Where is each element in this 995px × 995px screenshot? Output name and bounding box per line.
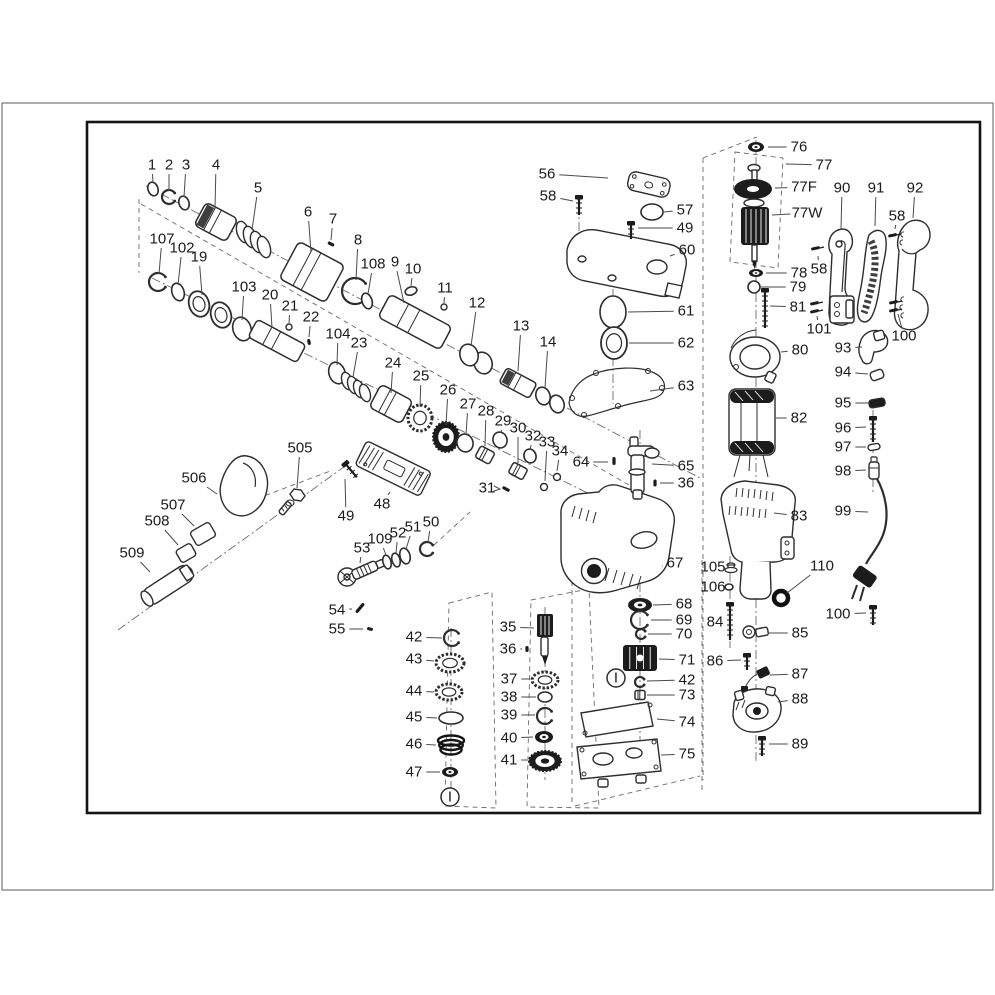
callout-label-36: 36 [500, 641, 517, 658]
part-glyph [600, 296, 626, 328]
callout-label-12: 12 [469, 295, 486, 312]
callout-label-7: 7 [329, 211, 337, 228]
callout-label-70: 70 [676, 626, 693, 643]
leader-line [207, 487, 217, 494]
callout-label-71: 71 [679, 652, 696, 669]
callout-label-91: 91 [868, 180, 885, 197]
cover-plate-drawing [626, 171, 671, 199]
callout-label-83: 83 [791, 508, 808, 525]
part-glyph [339, 371, 372, 403]
leader-line [545, 451, 547, 481]
part-glyph [444, 630, 460, 646]
callout-label-63: 63 [678, 378, 695, 395]
grip-91-drawing [857, 230, 886, 321]
leader-line [657, 719, 675, 721]
dashed-line [434, 512, 470, 545]
callout-label-55: 55 [329, 621, 346, 638]
leader-line [501, 430, 502, 433]
page-border [2, 103, 993, 890]
callout-label-100: 100 [891, 328, 916, 345]
field-stator-drawing [729, 389, 775, 477]
callout-label-93: 93 [835, 340, 852, 357]
power-cord-drawing [852, 477, 887, 601]
part-glyphs-layer [146, 142, 902, 777]
callout-label-64: 64 [573, 454, 590, 471]
leader-line [545, 351, 547, 388]
part-glyph [575, 195, 583, 215]
leader-line [855, 511, 868, 512]
callout-label-56: 56 [539, 166, 556, 183]
callout-label-4: 4 [212, 157, 220, 174]
leader-line [471, 312, 476, 346]
part-glyph [758, 736, 766, 756]
gear-housing-drawing [561, 485, 674, 593]
part-glyph [307, 339, 311, 345]
callout-label-105: 105 [700, 559, 725, 576]
leader-line [396, 542, 397, 553]
leader-line [727, 660, 741, 661]
part-glyph [811, 246, 824, 251]
callout-label-104: 104 [325, 326, 350, 343]
armature-drawing [734, 165, 772, 270]
bottom-plate-75-drawing [577, 739, 661, 787]
callout-label-I: I [614, 670, 618, 687]
leader-line [337, 343, 338, 365]
callout-label-34: 34 [552, 443, 569, 460]
part-glyph [378, 294, 452, 350]
top-cover-drawing [567, 230, 686, 298]
callout-label-21: 21 [282, 298, 299, 315]
callout-label-5: 5 [254, 180, 262, 197]
leader-line [406, 536, 410, 549]
callout-label-42: 42 [406, 629, 423, 646]
callout-label-24: 24 [385, 355, 402, 372]
leader-line [895, 225, 896, 229]
part-glyph [810, 301, 823, 314]
callout-label-62: 62 [678, 335, 695, 352]
callout-label-67: 67 [667, 555, 684, 572]
switch-93-drawing [859, 330, 888, 364]
callout-label-81: 81 [790, 299, 807, 316]
leader-line [356, 249, 358, 280]
part-glyph [436, 684, 462, 700]
leader-line [659, 659, 675, 660]
leader-line [664, 211, 673, 212]
callout-label-94: 94 [835, 364, 852, 381]
part-glyph [439, 712, 463, 724]
leader-line [466, 413, 467, 435]
part-glyph [869, 457, 879, 479]
leader-line [242, 296, 243, 320]
part-glyph [436, 654, 464, 672]
leader-line [560, 198, 573, 201]
callout-label-106: 106 [700, 579, 725, 596]
part-glyph [499, 368, 537, 399]
part-glyph [761, 288, 769, 328]
part-glyph [355, 602, 365, 613]
part-glyph [869, 416, 877, 442]
part-glyph [433, 422, 459, 452]
part-glyph [327, 241, 335, 247]
part-glyph [248, 319, 306, 362]
leader-line [178, 257, 181, 285]
callout-label-75: 75 [679, 746, 696, 763]
callout-label-101: 101 [806, 321, 831, 338]
part-glyph [748, 142, 764, 152]
handle-frame-90-drawing [829, 229, 854, 325]
callout-label-48: 48 [374, 496, 391, 513]
callout-label-108: 108 [360, 256, 385, 273]
part-glyph [538, 692, 552, 702]
callout-label-49: 49 [677, 220, 694, 237]
leader-line [345, 479, 346, 507]
callout-label-28: 28 [478, 403, 495, 420]
leader-line [518, 335, 520, 371]
part-glyph [508, 462, 528, 480]
callout-label-58: 58 [540, 188, 557, 205]
callout-label-50: 50 [423, 514, 440, 531]
part-glyph [177, 195, 191, 211]
gasket-drawing [569, 368, 665, 417]
callout-label-103: 103 [231, 279, 256, 296]
part-glyph [869, 605, 877, 625]
crank-shaft-drawing [628, 437, 659, 499]
part-glyph [869, 369, 884, 382]
callout-label-10: 10 [405, 261, 422, 278]
callout-label-31: 31 [479, 480, 496, 497]
callout-label-505: 505 [287, 440, 312, 457]
part-glyph [360, 292, 374, 310]
part-glyph [475, 446, 495, 465]
callout-label-68: 68 [676, 596, 693, 613]
part-glyph [641, 204, 663, 220]
leader-line [159, 248, 161, 274]
selector-knob-drawing [338, 557, 385, 586]
callout-label-509: 509 [119, 545, 144, 562]
callout-label-76: 76 [791, 139, 808, 156]
leader-line [360, 557, 361, 563]
part-glyph [601, 327, 627, 359]
part-glyph [162, 190, 176, 204]
leader-line [184, 174, 185, 197]
callout-label-49: 49 [338, 508, 355, 525]
callout-label-39: 39 [501, 707, 518, 724]
leader-line [520, 627, 534, 628]
callout-label-43: 43 [406, 651, 423, 668]
callout-label-87: 87 [792, 666, 809, 683]
callout-label-3: 3 [182, 157, 190, 174]
callout-label-508: 508 [144, 513, 169, 530]
part-glyph [367, 627, 374, 632]
callout-label-92: 92 [907, 180, 924, 197]
leader-line [215, 174, 216, 208]
part-glyph [535, 731, 553, 743]
callout-label-14: 14 [540, 334, 557, 351]
callout-label-506: 506 [181, 470, 206, 487]
leader-line [786, 164, 812, 165]
part-glyph [554, 474, 561, 481]
callout-label-23: 23 [351, 335, 368, 352]
leader-line [141, 562, 150, 572]
callout-label-77F: 77F [791, 179, 817, 196]
part-glyph [653, 480, 656, 487]
callout-label-37: 37 [501, 671, 518, 688]
motor-housing-drawing [721, 481, 795, 599]
leader-line [426, 660, 434, 661]
callout-label-11: 11 [437, 280, 453, 297]
part-glyph [420, 542, 434, 556]
exploded-parts-diagram-page: 1234567810891011121314107102191032021221… [0, 0, 995, 995]
callout-label-86: 86 [707, 653, 724, 670]
leader-line [426, 637, 442, 638]
page-frames [2, 103, 993, 890]
handle-92-drawing [894, 220, 930, 329]
leader-line [368, 273, 372, 294]
callout-label-9: 9 [391, 254, 399, 271]
callout-label-77: 77 [816, 157, 833, 174]
callout-label-90: 90 [834, 180, 851, 197]
leader-line [200, 266, 202, 295]
callout-label-40: 40 [501, 730, 518, 747]
leader-line [165, 530, 178, 545]
part-glyph [146, 181, 160, 197]
callout-label-1: 1 [148, 157, 156, 174]
callout-label-84: 84 [707, 614, 724, 631]
leader-line [855, 373, 868, 374]
callout-label-13: 13 [513, 318, 530, 335]
callout-label-22: 22 [303, 309, 320, 326]
leader-line [182, 514, 194, 526]
part-glyph [725, 563, 737, 573]
part-glyph [748, 281, 760, 293]
callout-label-38: 38 [501, 689, 518, 706]
part-glyph [175, 543, 197, 564]
leader-line [411, 278, 412, 286]
leader-line [770, 306, 786, 307]
part-glyph [532, 672, 558, 688]
part-glyph [743, 653, 751, 670]
leader-line [661, 754, 675, 755]
callout-label-79: 79 [790, 279, 807, 296]
leader-line [559, 175, 608, 178]
callout-label-60: 60 [679, 242, 696, 259]
callout-label-80: 80 [792, 342, 809, 359]
leader-line [875, 197, 876, 226]
part-glyph [286, 324, 292, 330]
leader-line [309, 326, 310, 337]
callout-label-82: 82 [791, 410, 808, 427]
callout-label-35: 35 [500, 619, 517, 636]
diagram-canvas: 1234567810891011121314107102191032021221… [0, 0, 995, 995]
callout-label-77W: 77W [792, 205, 824, 222]
leader-line [252, 197, 257, 230]
callout-label-45: 45 [406, 709, 423, 726]
leader-line [271, 304, 272, 328]
callout-label-96: 96 [835, 420, 852, 437]
callout-label-98: 98 [835, 463, 852, 480]
part-glyph [529, 751, 561, 771]
leader-line [428, 531, 430, 542]
part-glyph [868, 398, 885, 409]
callout-label-100: 100 [825, 606, 850, 623]
callout-label-99: 99 [835, 503, 852, 520]
callout-label-507: 507 [160, 497, 185, 514]
callout-label-74: 74 [679, 714, 696, 731]
part-glyph [207, 300, 234, 331]
end-cap-drawing [733, 686, 781, 732]
bearing-bracket-drawing [730, 330, 780, 384]
part-glyph [635, 691, 645, 700]
leader-line [383, 548, 386, 555]
part-glyph [441, 304, 447, 310]
vent-plate-drawing [355, 441, 432, 497]
callout-label-2: 2 [165, 157, 173, 174]
callout-label-85: 85 [792, 625, 809, 642]
part-glyph [404, 285, 418, 296]
part-glyph [541, 484, 548, 491]
callout-label-41: 41 [501, 752, 518, 769]
callout-label-19: 19 [191, 249, 208, 266]
callout-label-58: 58 [811, 261, 828, 278]
part-glyph [726, 602, 734, 640]
part-glyph [381, 554, 392, 570]
callout-label-110: 110 [810, 558, 834, 575]
leader-line [770, 674, 788, 675]
callout-label-57: 57 [677, 202, 694, 219]
leader-line [557, 460, 559, 471]
callout-label-95: 95 [835, 395, 852, 412]
part-glyph [149, 273, 167, 291]
part-glyph [774, 591, 788, 605]
leader-line [331, 228, 332, 240]
leader-line [153, 174, 154, 183]
callout-label-61: 61 [678, 303, 695, 320]
callout-label-44: 44 [406, 683, 423, 700]
part-glyph [502, 486, 511, 493]
clamp-bolt-drawing [278, 489, 305, 516]
callout-label-97: 97 [835, 439, 852, 456]
leader-line [485, 420, 486, 446]
leader-line [787, 575, 810, 593]
callout-label-36: 36 [678, 475, 695, 492]
leader-line [841, 197, 842, 230]
callout-label-88: 88 [792, 691, 809, 708]
callout-label-65: 65 [678, 458, 695, 475]
leader-line [297, 457, 299, 488]
callout-label-27: 27 [460, 396, 477, 413]
leader-line [913, 197, 914, 218]
callout-label-51: 51 [405, 519, 422, 536]
part-glyph [442, 767, 458, 777]
callout-label-47: 47 [406, 764, 423, 781]
leader-line [653, 604, 672, 605]
callout-label-26: 26 [440, 382, 457, 399]
part-glyph [636, 629, 646, 639]
part-glyph [612, 457, 615, 465]
part-glyph [408, 405, 432, 431]
part-glyph [525, 646, 528, 652]
leader-line [652, 464, 674, 465]
callout-label-I: I [448, 789, 452, 806]
part-glyph [194, 202, 238, 242]
part-drawings [138, 165, 930, 788]
piston-gear-shaft-drawing [537, 614, 553, 665]
callout-label-8: 8 [354, 232, 362, 249]
part-glyph [279, 241, 345, 302]
leader-line [420, 385, 421, 407]
part-glyph [749, 269, 763, 277]
leader-line [781, 351, 788, 352]
callout-label-58: 58 [889, 208, 906, 225]
part-glyph [234, 220, 273, 260]
leader-line [772, 214, 790, 215]
part-glyph [725, 584, 733, 590]
callout-label-89: 89 [792, 736, 809, 753]
leader-line [817, 316, 818, 320]
callout-label-25: 25 [413, 368, 430, 385]
callout-label-20: 20 [262, 287, 279, 304]
leader-line [628, 311, 674, 312]
callout-label-6: 6 [304, 204, 312, 221]
callout-label-73: 73 [679, 687, 696, 704]
callout-label-46: 46 [406, 736, 423, 753]
bottom-plate-74-drawing [581, 702, 653, 737]
leader-line [353, 352, 357, 377]
part-glyph [868, 443, 881, 451]
part-glyph [185, 289, 212, 320]
side-handle-grip-drawing [220, 456, 267, 516]
leader-line [647, 680, 675, 681]
callout-label-54: 54 [329, 602, 346, 619]
part-glyph [623, 645, 657, 671]
